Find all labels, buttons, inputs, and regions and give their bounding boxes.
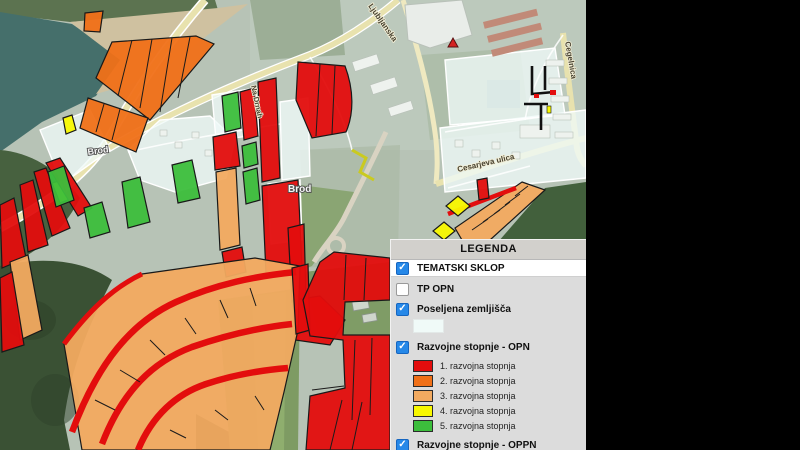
stage-2-label: 2. razvojna stopnja [440,376,516,386]
stage-1-label: 1. razvojna stopnja [440,361,516,371]
checkbox-razvojne-opn[interactable]: ✓ [396,341,409,354]
stage-1-swatch [413,360,433,372]
checkbox-poseljena[interactable]: ✓ [396,303,409,316]
legend-panel: LEGENDA ✓ TEMATSKI SKLOP TP OPN ✓ Poselj… [390,239,586,450]
poseljena-swatch [413,319,444,333]
checkbox-tp-opn[interactable] [396,283,409,296]
checkbox-tematski-sklop[interactable]: ✓ [396,262,409,275]
legend-row-razvojne-opn[interactable]: ✓ Razvojne stopnje - OPN [391,339,586,355]
legend-label: Poseljena zemljišča [417,304,511,315]
stage-4-swatch [413,405,433,417]
legend-row-tematski-sklop[interactable]: ✓ TEMATSKI SKLOP [391,260,586,277]
checkmark-icon: ✓ [398,440,406,450]
legend-label: Razvojne stopnje - OPN [417,342,530,353]
street-label-brod-center: Brod [288,184,311,195]
legend-label: TP OPN [417,284,454,295]
stage-5-label: 5. razvojna stopnja [440,421,516,431]
legend-stage-3: 3. razvojna stopnja [391,388,586,403]
legend-row-razvojne-oppn[interactable]: ✓ Razvojne stopnje - OPPN [391,437,586,450]
legend-stage-1: 1. razvojna stopnja [391,358,586,373]
checkbox-razvojne-oppn[interactable]: ✓ [396,439,409,450]
stage-3-swatch [413,390,433,402]
stage-3-label: 3. razvojna stopnja [440,391,516,401]
checkmark-icon: ✓ [398,263,406,273]
gis-viewer-screen: Brod Brod Cesarjeva ulica Ljubljanska Ce… [0,0,800,450]
legend-stage-2: 2. razvojna stopnja [391,373,586,388]
checkmark-icon: ✓ [398,304,406,314]
legend-label: Razvojne stopnje - OPPN [417,440,536,450]
legend-label: TEMATSKI SKLOP [417,263,505,274]
legend-stage-4: 4. razvojna stopnja [391,403,586,418]
legend-row-poseljena[interactable]: ✓ Poseljena zemljišča [391,301,586,317]
stage-2-swatch [413,375,433,387]
stage-5-swatch [413,420,433,432]
legend-title: LEGENDA [391,240,586,260]
stage-4-label: 4. razvojna stopnja [440,406,516,416]
legend-row-tp-opn[interactable]: TP OPN [391,281,586,297]
legend-stage-5: 5. razvojna stopnja [391,418,586,433]
checkmark-icon: ✓ [398,342,406,352]
